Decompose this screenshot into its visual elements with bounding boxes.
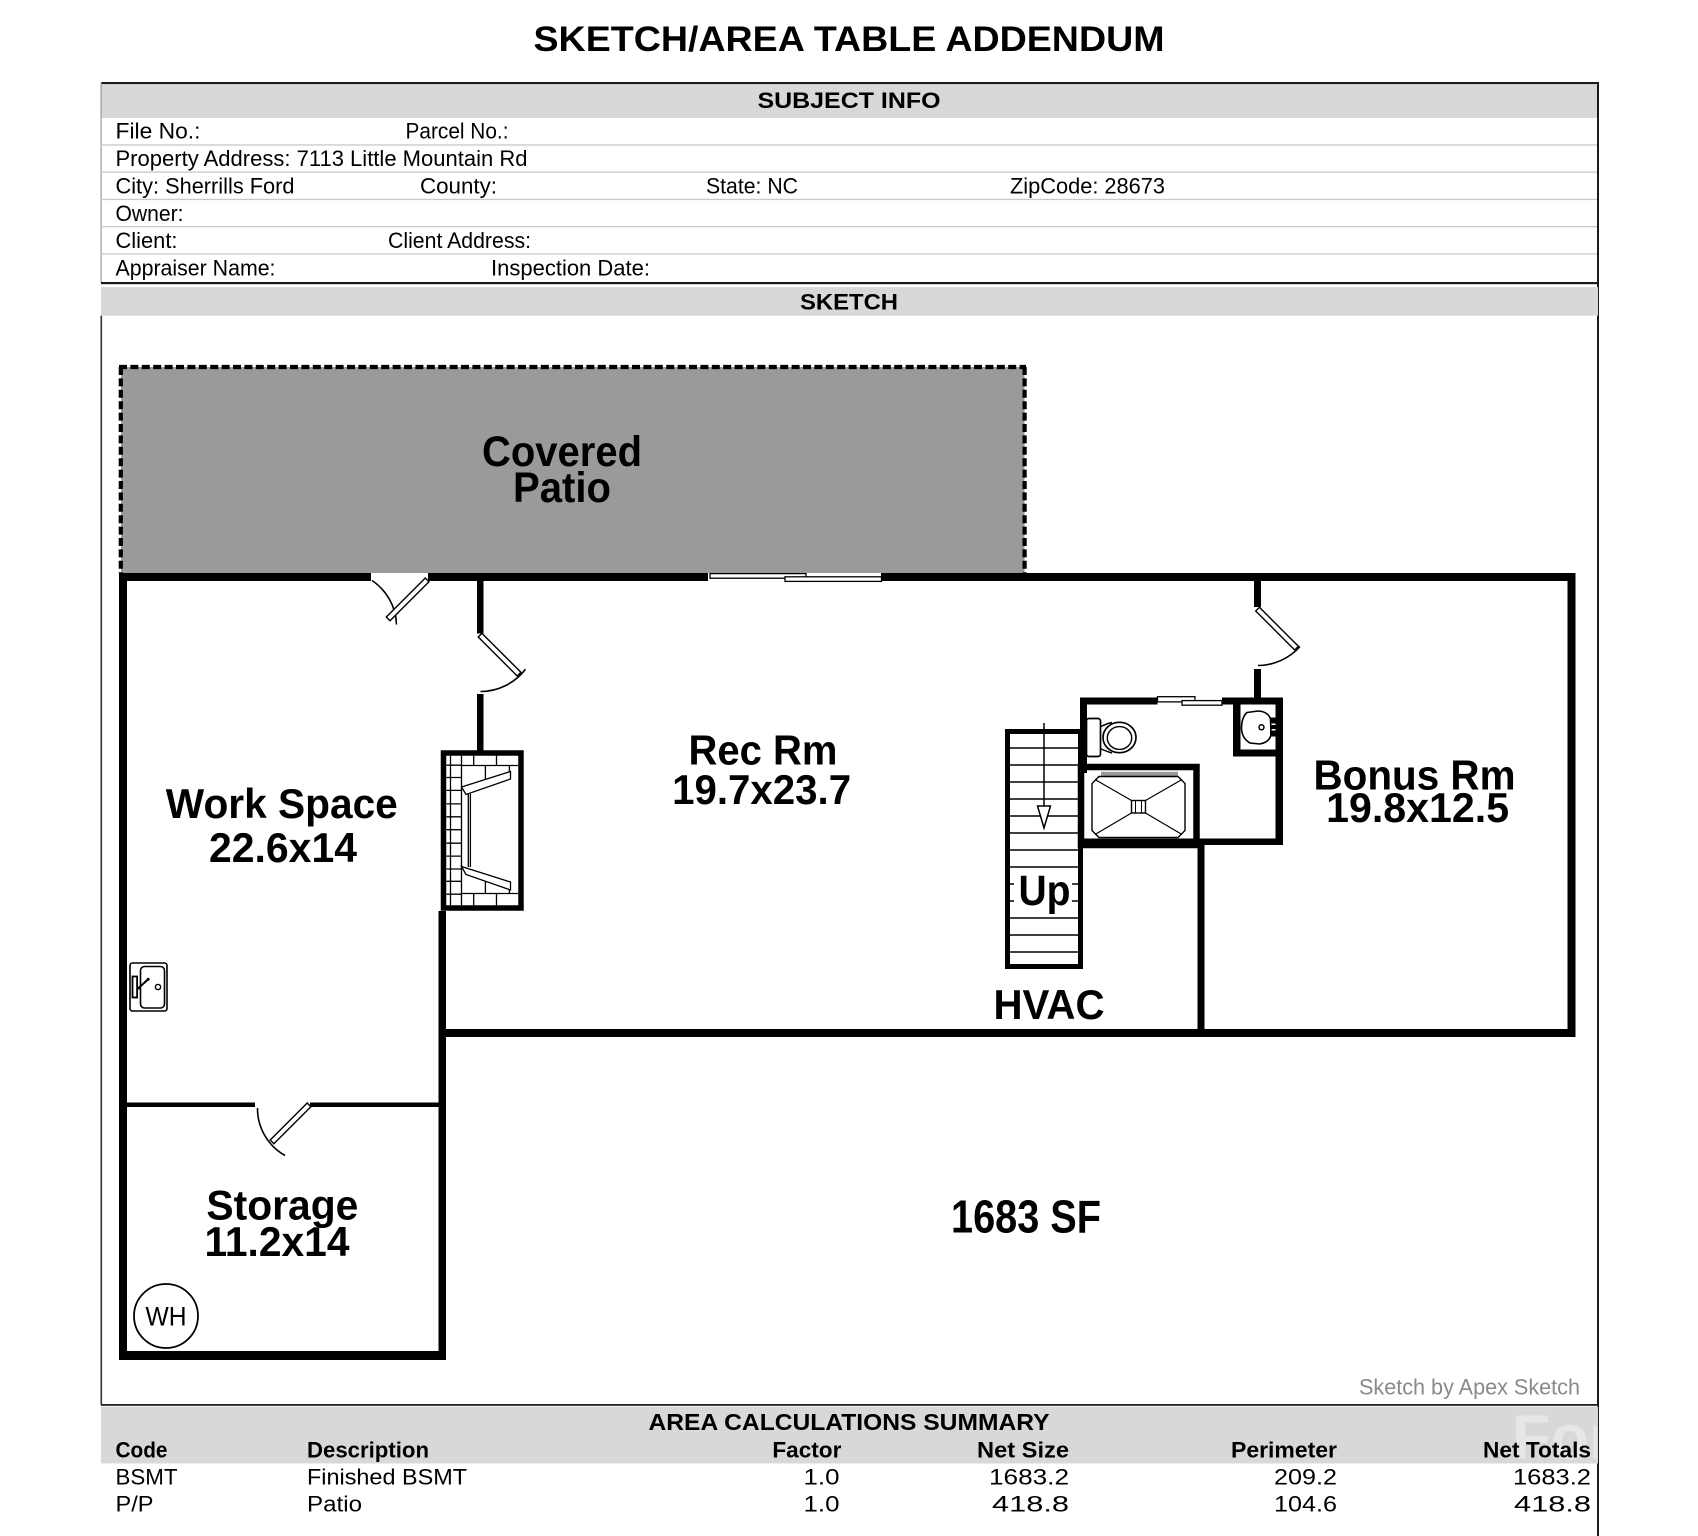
- svg-text:418.8: 418.8: [992, 1492, 1069, 1517]
- svg-text:ZipCode: 28673: ZipCode: 28673: [1010, 174, 1165, 199]
- svg-text:State: NC: State: NC: [706, 174, 798, 199]
- svg-text:Net Size: Net Size: [977, 1438, 1069, 1463]
- svg-text:Client:: Client:: [116, 228, 178, 253]
- svg-text:11.2x14: 11.2x14: [205, 1218, 351, 1265]
- svg-text:City: Sherrills Ford: City: Sherrills Ford: [116, 174, 295, 199]
- svg-text:P/P: P/P: [116, 1492, 154, 1517]
- svg-text:Patio: Patio: [307, 1492, 362, 1517]
- svg-text:Property Address: 7113 Little: Property Address: 7113 Little Mountain R…: [116, 146, 528, 171]
- svg-text:County:: County:: [420, 174, 497, 199]
- svg-text:Parcel No.:: Parcel No.:: [406, 119, 509, 144]
- svg-text:Appraiser Name:: Appraiser Name:: [116, 255, 276, 280]
- svg-text:AREA CALCULATIONS SUMMARY: AREA CALCULATIONS SUMMARY: [649, 1409, 1050, 1435]
- svg-text:1683.2: 1683.2: [989, 1465, 1069, 1490]
- svg-text:Finished BSMT: Finished BSMT: [307, 1465, 467, 1490]
- svg-text:SUBJECT INFO: SUBJECT INFO: [758, 88, 941, 113]
- svg-text:Description: Description: [307, 1438, 429, 1463]
- svg-text:Sketch by Apex Sketch: Sketch by Apex Sketch: [1359, 1375, 1580, 1400]
- svg-text:19.7x23.7: 19.7x23.7: [672, 766, 851, 813]
- svg-text:File No.:: File No.:: [116, 119, 201, 144]
- svg-text:418.8: 418.8: [1514, 1492, 1591, 1517]
- svg-text:BSMT: BSMT: [116, 1465, 178, 1490]
- svg-text:SKETCH: SKETCH: [800, 289, 898, 314]
- svg-text:Up: Up: [1019, 867, 1071, 915]
- svg-text:Owner:: Owner:: [116, 201, 184, 226]
- svg-text:Net Totals: Net Totals: [1483, 1438, 1591, 1463]
- svg-text:104.6: 104.6: [1274, 1492, 1337, 1517]
- svg-text:Perimeter: Perimeter: [1231, 1438, 1337, 1463]
- svg-text:SKETCH/AREA TABLE ADDENDUM: SKETCH/AREA TABLE ADDENDUM: [534, 20, 1165, 59]
- svg-text:1683.2: 1683.2: [1513, 1465, 1591, 1490]
- svg-text:Code: Code: [116, 1438, 168, 1463]
- svg-text:WH: WH: [146, 1302, 187, 1332]
- svg-text:1.0: 1.0: [804, 1465, 840, 1490]
- svg-text:Inspection Date:: Inspection Date:: [491, 255, 650, 280]
- svg-text:1.0: 1.0: [804, 1492, 840, 1517]
- svg-text:209.2: 209.2: [1274, 1465, 1337, 1490]
- svg-text:19.8x12.5: 19.8x12.5: [1326, 784, 1509, 831]
- svg-text:Work Space: Work Space: [166, 780, 398, 827]
- svg-text:HVAC: HVAC: [994, 981, 1105, 1028]
- svg-text:Client Address:: Client Address:: [388, 228, 531, 253]
- svg-text:22.6x14: 22.6x14: [209, 824, 358, 871]
- svg-text:Factor: Factor: [772, 1438, 841, 1463]
- svg-text:Patio: Patio: [513, 464, 611, 512]
- svg-text:1683 SF: 1683 SF: [951, 1191, 1101, 1243]
